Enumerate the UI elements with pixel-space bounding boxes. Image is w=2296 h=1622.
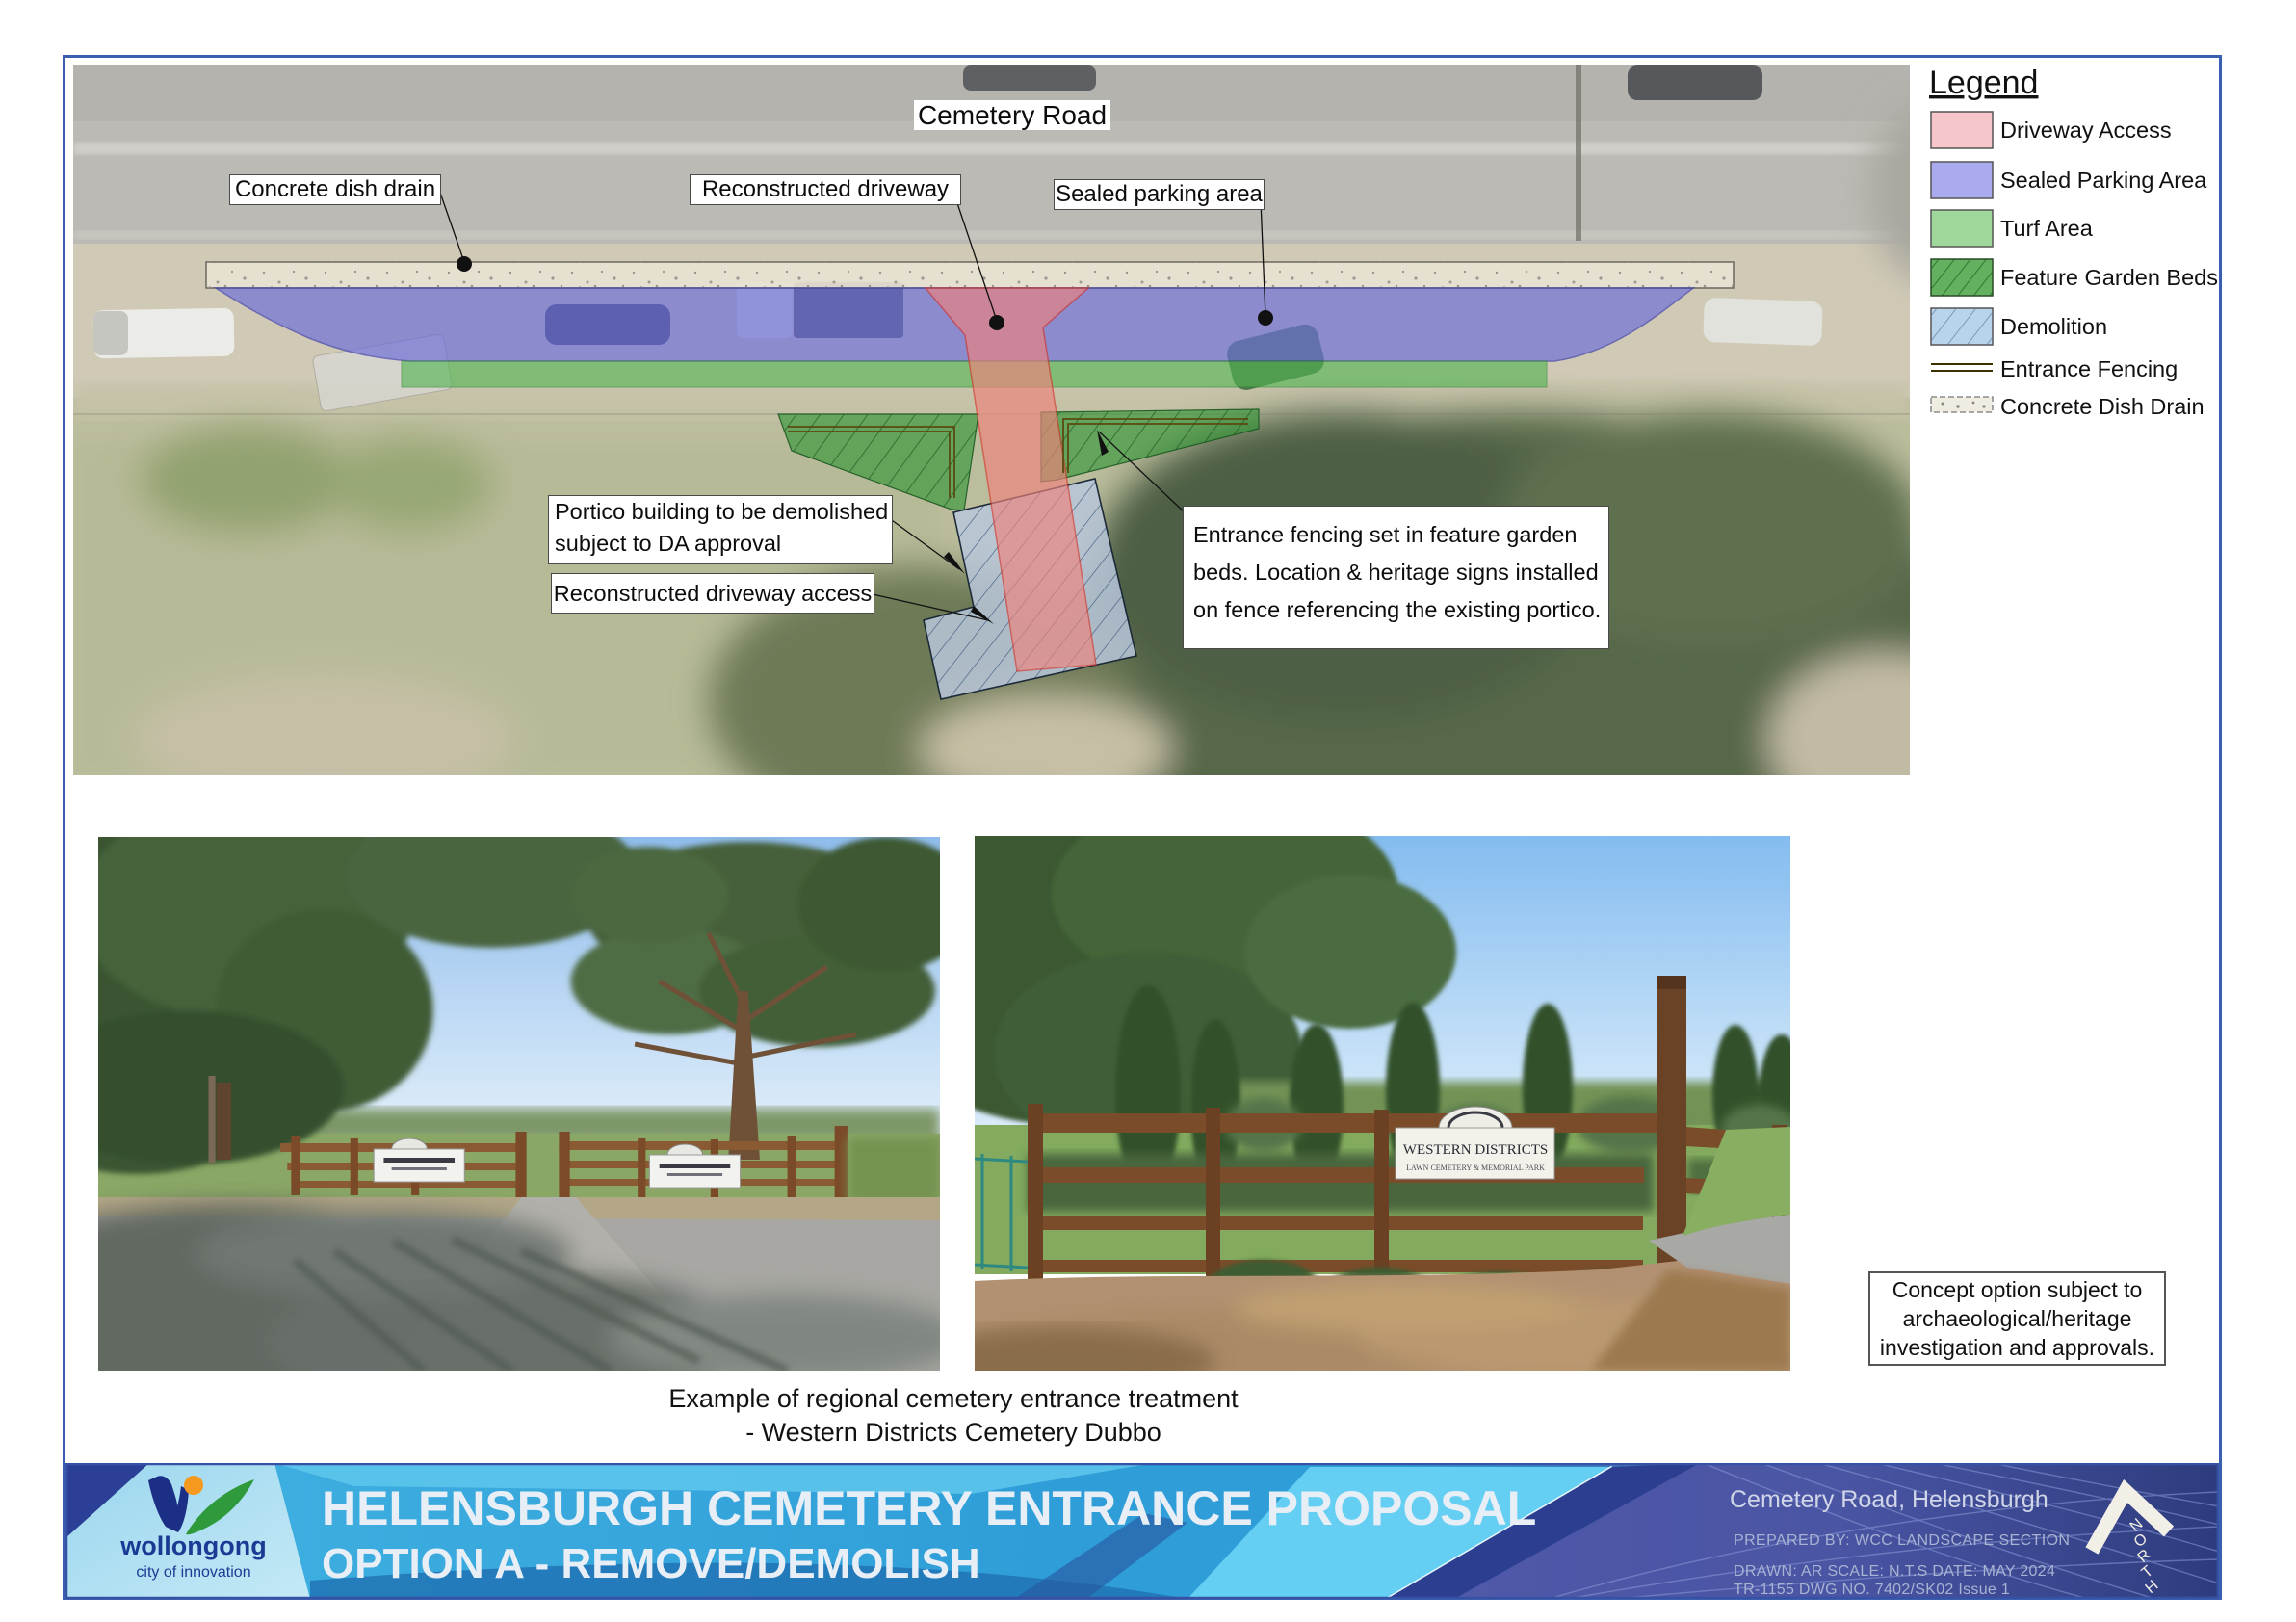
svg-text:Sealed Parking Area: Sealed Parking Area: [2000, 168, 2207, 193]
svg-text:WESTERN DISTRICTS: WESTERN DISTRICTS: [1403, 1142, 1548, 1158]
svg-text:Turf Area: Turf Area: [2000, 216, 2094, 241]
svg-text:Cemetery Road, Helensburgh: Cemetery Road, Helensburgh: [1730, 1486, 2048, 1513]
svg-text:Concrete Dish Drain: Concrete Dish Drain: [2000, 394, 2205, 419]
svg-text:OPTION A - REMOVE/DEMOLISH: OPTION A - REMOVE/DEMOLISH: [322, 1540, 980, 1587]
svg-text:Entrance Fencing: Entrance Fencing: [2000, 356, 2178, 381]
svg-text:HELENSBURGH CEMETERY ENTRANCE: HELENSBURGH CEMETERY ENTRANCE PROPOSAL: [322, 1481, 1536, 1535]
svg-text:LAWN CEMETERY & MEMORIAL PARK: LAWN CEMETERY & MEMORIAL PARK: [1406, 1164, 1545, 1172]
svg-text:PREPARED BY: WCC LANDS: PREPARED BY: WCC LANDSCAPE SECTION: [1734, 1532, 2070, 1549]
svg-text:Feature Garden Beds: Feature Garden Beds: [2000, 265, 2218, 290]
svg-text:city of innovation: city of innovation: [136, 1564, 250, 1581]
svg-text:TR-1155 DWG NO.: TR-1155 DWG NO. 7402/SK02 Issue 1: [1734, 1582, 2010, 1598]
svg-text:DRAWN: AR SCALE: N.T.S DAT: DRAWN: AR SCALE: N.T.S DATE: MAY 2024: [1734, 1563, 2055, 1580]
svg-text:Driveway Access: Driveway Access: [2000, 118, 2172, 143]
svg-text:wollongong: wollongong: [119, 1531, 266, 1560]
svg-text:Legend: Legend: [1929, 67, 2038, 101]
svg-text:Demolition: Demolition: [2000, 314, 2107, 339]
